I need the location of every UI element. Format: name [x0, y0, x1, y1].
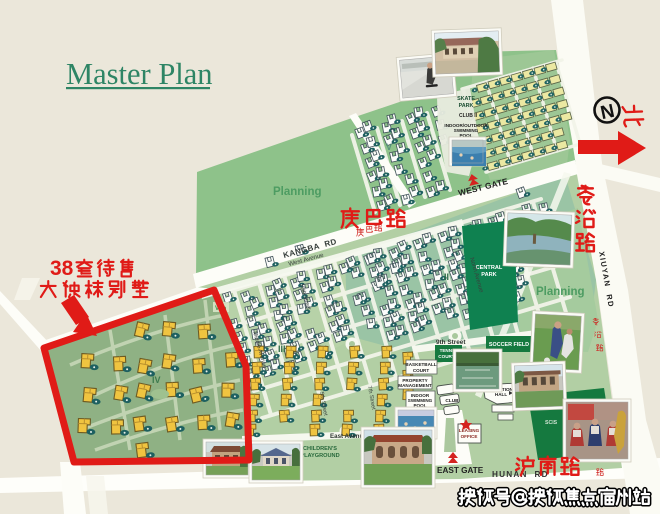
svg-text:OFFICE: OFFICE — [461, 434, 478, 439]
svg-text:38: 38 — [50, 257, 74, 280]
svg-text:PARK: PARK — [481, 272, 496, 278]
svg-text:PARK: PARK — [459, 103, 474, 109]
svg-text:Planning: Planning — [536, 286, 585, 298]
svg-text:COURT: COURT — [413, 368, 430, 373]
svg-text:MANAGEMENT: MANAGEMENT — [398, 383, 432, 388]
svg-text:Master Plan: Master Plan — [66, 57, 213, 91]
svg-text:SOCCER FIELD: SOCCER FIELD — [489, 342, 529, 348]
svg-text:EAST GATE: EAST GATE — [437, 466, 484, 475]
svg-text:CHILDREN'S: CHILDREN'S — [303, 446, 337, 452]
svg-text:IV: IV — [152, 375, 161, 385]
svg-text:SCIS: SCIS — [545, 420, 558, 426]
svg-text:III: III — [278, 344, 286, 354]
svg-text:HALL: HALL — [495, 392, 507, 397]
svg-text:CLUB: CLUB — [445, 398, 459, 404]
svg-text:9th Street: 9th Street — [436, 339, 466, 346]
svg-text:CENTRAL: CENTRAL — [476, 265, 503, 271]
svg-text:V: V — [386, 142, 392, 152]
svg-text:Planning: Planning — [273, 186, 322, 198]
svg-text:CLUB II: CLUB II — [459, 113, 478, 119]
svg-text:BASKETBALL: BASKETBALL — [405, 362, 436, 367]
svg-text:PLAYGROUND: PLAYGROUND — [300, 453, 339, 459]
svg-text:II: II — [444, 272, 449, 282]
svg-text:SKATE: SKATE — [457, 96, 475, 102]
